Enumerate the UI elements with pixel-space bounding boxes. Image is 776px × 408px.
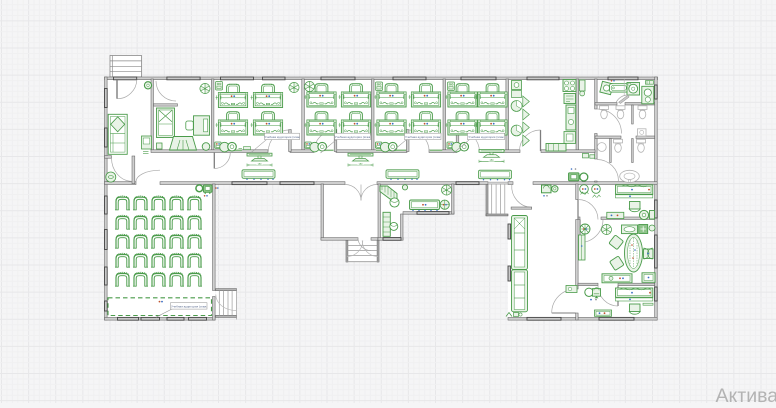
svg-text:Учебная аудитория (этаж: Учебная аудитория (этаж <box>171 304 206 308</box>
svg-text:Учебная аудитория (этаж: Учебная аудитория (этаж <box>264 135 299 139</box>
svg-text:Учебная аудитория (этаж: Учебная аудитория (этаж <box>405 135 440 139</box>
svg-text:Учебная аудитория (этаж: Учебная аудитория (этаж <box>468 135 503 139</box>
svg-text:Учебная аудитория (этаж: Учебная аудитория (этаж <box>335 135 370 139</box>
